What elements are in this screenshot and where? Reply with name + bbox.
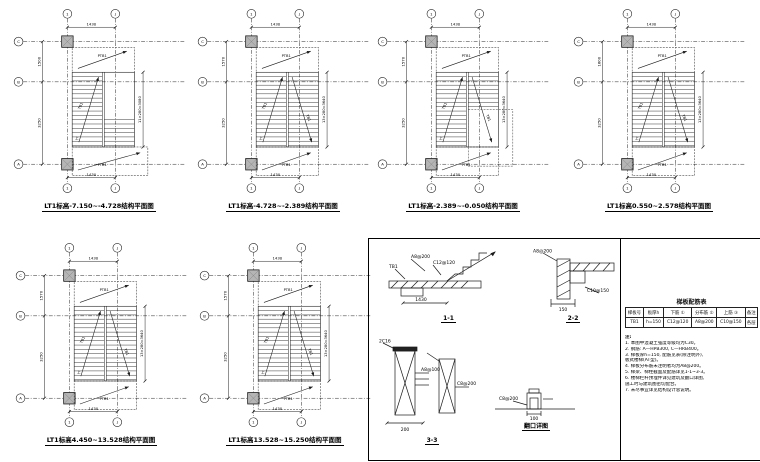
svg-text:A: A xyxy=(577,162,580,167)
svg-text:J: J xyxy=(116,420,118,425)
svg-text:J: J xyxy=(478,11,480,16)
svg-text:11×280=3080: 11×280=3080 xyxy=(138,96,142,124)
schedule-cell: 分布筋 ② xyxy=(692,308,717,318)
svg-text:PTB1: PTB1 xyxy=(284,288,293,292)
svg-text:1570: 1570 xyxy=(39,290,44,300)
stair-plan-5: 11JJCBAPTB1上TB1TB1PTB1143014301570325013… xyxy=(10,236,192,446)
svg-text:PTB1: PTB1 xyxy=(282,163,291,167)
svg-text:C: C xyxy=(381,39,384,44)
svg-text:A8@100: A8@100 xyxy=(421,367,440,373)
svg-text:3250: 3250 xyxy=(223,352,228,362)
svg-text:PTB1: PTB1 xyxy=(658,163,667,167)
svg-text:1: 1 xyxy=(68,245,71,250)
svg-text:C: C xyxy=(577,39,580,44)
plan-caption-5: LT1标高4.450~13.528结构平面图 xyxy=(45,434,158,446)
svg-text:TB1: TB1 xyxy=(79,336,86,345)
svg-text:TB1: TB1 xyxy=(263,336,270,345)
svg-text:B: B xyxy=(381,79,384,84)
schedule-cell: h=150 xyxy=(643,318,663,328)
svg-text:1430: 1430 xyxy=(646,172,656,177)
svg-text:13×280=3640: 13×280=3640 xyxy=(698,96,702,124)
svg-text:B: B xyxy=(203,313,206,318)
svg-text:1: 1 xyxy=(430,186,433,191)
svg-text:PTB1: PTB1 xyxy=(462,54,471,58)
svg-text:C8@200: C8@200 xyxy=(499,396,518,402)
section-2-2: A8@200 C10@150 150 2-2 xyxy=(529,247,617,323)
schedule-title: 梯板配筋表 xyxy=(625,297,758,306)
svg-text:1: 1 xyxy=(430,11,433,16)
stair-plan-3: 11JJCBAPTB1上TB1TB1PTB1143014301570325013… xyxy=(372,2,554,212)
schedule-cell: C10@150 xyxy=(717,318,745,328)
svg-text:1430: 1430 xyxy=(450,172,460,177)
svg-text:1430: 1430 xyxy=(86,172,96,177)
svg-text:上: 上 xyxy=(77,369,81,374)
schedule-cell: C12@120 xyxy=(664,318,692,328)
stair-plan-3-drawing: 11JJCBAPTB1上TB1TB1PTB1143014301570325013… xyxy=(372,2,554,200)
schedule-cell: 各层 xyxy=(745,318,757,328)
svg-text:A: A xyxy=(203,396,206,401)
svg-text:13×280=3640: 13×280=3640 xyxy=(322,96,326,124)
svg-text:3250: 3250 xyxy=(39,352,44,362)
section-1-1-caption: 1-1 xyxy=(441,315,456,323)
svg-text:1: 1 xyxy=(626,11,629,16)
svg-text:150: 150 xyxy=(559,307,568,313)
svg-text:1430: 1430 xyxy=(646,21,656,26)
detail-box-divider xyxy=(620,239,621,460)
svg-text:A8@200: A8@200 xyxy=(411,254,430,260)
svg-text:PTB1: PTB1 xyxy=(658,54,667,58)
curb-detail-caption: 翻口详图 xyxy=(522,421,550,431)
svg-text:200: 200 xyxy=(401,427,410,433)
svg-text:1430: 1430 xyxy=(450,21,460,26)
svg-text:J: J xyxy=(114,186,116,191)
schedule-cell: TB1 xyxy=(626,318,644,328)
svg-text:C12@120: C12@120 xyxy=(433,260,455,266)
schedule-cell: 梯板号 xyxy=(626,308,644,318)
svg-text:1600: 1600 xyxy=(597,56,602,66)
svg-text:上: 上 xyxy=(439,135,443,140)
plan-caption-6: LT1标高13.528~15.250结构平面图 xyxy=(226,434,343,446)
svg-text:13×280=3640: 13×280=3640 xyxy=(502,96,506,124)
svg-text:J: J xyxy=(674,11,676,16)
svg-text:1430: 1430 xyxy=(86,21,96,26)
svg-text:B: B xyxy=(201,79,204,84)
svg-text:3250: 3250 xyxy=(401,118,406,128)
svg-text:1430: 1430 xyxy=(272,406,282,411)
svg-text:上: 上 xyxy=(261,369,265,374)
svg-text:TB1: TB1 xyxy=(77,102,84,111)
svg-text:TB1: TB1 xyxy=(261,102,268,111)
svg-text:1: 1 xyxy=(626,186,629,191)
svg-text:PTB1: PTB1 xyxy=(98,54,107,58)
svg-text:J: J xyxy=(674,186,676,191)
stair-plan-4-drawing: 11JJCBAPTB1上TB1TB1PTB1143014301600325013… xyxy=(568,2,750,200)
svg-text:13×280=3640: 13×280=3640 xyxy=(140,330,144,358)
svg-text:2C16: 2C16 xyxy=(379,339,391,345)
svg-text:1: 1 xyxy=(250,186,253,191)
svg-text:1570: 1570 xyxy=(221,56,226,66)
schedule-cell: 板厚h xyxy=(643,308,663,318)
svg-text:1570: 1570 xyxy=(223,290,228,300)
svg-text:C: C xyxy=(19,273,22,278)
svg-text:A: A xyxy=(201,162,204,167)
svg-text:PTB1: PTB1 xyxy=(100,397,109,401)
svg-text:B: B xyxy=(17,79,20,84)
svg-text:TB1: TB1 xyxy=(388,264,398,270)
svg-text:PTB1: PTB1 xyxy=(284,397,293,401)
stair-plan-6: 11JJCBAPTB1上TB1TB1PTB1143014301570325013… xyxy=(194,236,376,446)
svg-text:1: 1 xyxy=(66,186,69,191)
section-2-2-drawing: A8@200 C10@150 150 xyxy=(529,247,617,315)
stair-plan-2: 11JJCBAPTB1上TB1TB1PTB1143014301570325013… xyxy=(192,2,374,212)
svg-text:1430: 1430 xyxy=(270,21,280,26)
schedule-cell: 备注 xyxy=(745,308,757,318)
schedule-cell: 下筋 ① xyxy=(664,308,692,318)
svg-text:A8@200: A8@200 xyxy=(533,249,552,255)
section-1-1: A8@200 C12@120 TB1 1430 1-1 xyxy=(381,247,516,323)
svg-text:上: 上 xyxy=(259,135,263,140)
svg-text:J: J xyxy=(478,186,480,191)
svg-text:J: J xyxy=(300,245,302,250)
svg-text:A: A xyxy=(17,162,20,167)
svg-text:A: A xyxy=(19,396,22,401)
svg-text:C: C xyxy=(203,273,206,278)
stair-plan-5-drawing: 11JJCBAPTB1上TB1TB1PTB1143014301570325013… xyxy=(10,236,192,434)
notes-block: 注: 1. 本图中混凝土强度等级均为C30。2. 钢筋: A—HPB300, C… xyxy=(625,335,757,393)
svg-text:1: 1 xyxy=(250,11,253,16)
section-3-3: 2C16 A8@100 C8@200 200 3-3 xyxy=(377,337,487,445)
schedule-table: 梯板号板厚h下筋 ①分布筋 ②上筋 ③备注TB1h=150C12@120A8@2… xyxy=(625,307,758,328)
curb-detail: C8@200 100 翻口详图 xyxy=(491,381,581,431)
plan-caption-3: LT1标高-2.389~-0.050结构平面图 xyxy=(406,200,519,212)
note-line: 7. 未尽事宜详见结构设计总说明。 xyxy=(625,388,757,394)
section-2-2-caption: 2-2 xyxy=(566,315,581,323)
svg-text:J: J xyxy=(114,11,116,16)
plan-caption-1: LT1标高-7.150~-4.728结构平面图 xyxy=(42,200,155,212)
svg-text:1570: 1570 xyxy=(401,56,406,66)
stair-plan-6-drawing: 11JJCBAPTB1上TB1TB1PTB1143014301570325013… xyxy=(194,236,376,434)
plan-caption-2: LT1标高-4.728~-2.389结构平面图 xyxy=(226,200,339,212)
svg-text:C10@150: C10@150 xyxy=(587,288,609,294)
detail-box: A8@200 C12@120 TB1 1430 1-1 xyxy=(368,238,760,461)
section-3-3-caption: 3-3 xyxy=(425,437,440,445)
svg-text:J: J xyxy=(300,420,302,425)
svg-text:1: 1 xyxy=(66,11,69,16)
svg-text:PTB1: PTB1 xyxy=(100,288,109,292)
plan-caption-4: LT1标高0.550~2.578结构平面图 xyxy=(605,200,713,212)
schedule-cell: 上筋 ③ xyxy=(717,308,745,318)
section-3-3-drawing: 2C16 A8@100 C8@200 200 xyxy=(377,337,487,437)
svg-text:B: B xyxy=(19,313,22,318)
svg-text:1: 1 xyxy=(68,420,71,425)
svg-text:C: C xyxy=(17,39,20,44)
section-1-1-drawing: A8@200 C12@120 TB1 1430 xyxy=(381,247,516,315)
svg-text:J: J xyxy=(298,186,300,191)
drawing-sheet: 11JJCBAPTB1上TB1PTB1143014301500325011×28… xyxy=(0,0,760,462)
svg-text:A: A xyxy=(381,162,384,167)
svg-text:13×280=3640: 13×280=3640 xyxy=(324,330,328,358)
svg-text:TB1: TB1 xyxy=(637,102,644,111)
svg-text:1430: 1430 xyxy=(270,172,280,177)
schedule-cell: A8@200 xyxy=(692,318,717,328)
svg-text:J: J xyxy=(298,11,300,16)
svg-text:1500: 1500 xyxy=(37,56,42,66)
svg-text:1430: 1430 xyxy=(415,297,427,303)
svg-text:PTB1: PTB1 xyxy=(462,163,471,167)
curb-detail-drawing: C8@200 100 xyxy=(491,381,581,421)
stair-plan-2-drawing: 11JJCBAPTB1上TB1TB1PTB1143014301570325013… xyxy=(192,2,374,200)
stair-plan-4: 11JJCBAPTB1上TB1TB1PTB1143014301600325013… xyxy=(568,2,750,212)
svg-text:PTB1: PTB1 xyxy=(98,163,107,167)
svg-text:1: 1 xyxy=(252,245,255,250)
svg-text:上: 上 xyxy=(635,135,639,140)
svg-text:PTB1: PTB1 xyxy=(282,54,291,58)
svg-text:C8@200: C8@200 xyxy=(457,381,476,387)
svg-text:上: 上 xyxy=(75,135,79,140)
svg-text:TB1: TB1 xyxy=(441,102,448,111)
svg-text:B: B xyxy=(577,79,580,84)
svg-text:1430: 1430 xyxy=(272,255,282,260)
rebar-schedule: 梯板配筋表 梯板号板厚h下筋 ①分布筋 ②上筋 ③备注TB1h=150C12@1… xyxy=(625,297,758,328)
svg-text:J: J xyxy=(116,245,118,250)
svg-text:1: 1 xyxy=(252,420,255,425)
svg-text:3250: 3250 xyxy=(221,118,226,128)
svg-text:1430: 1430 xyxy=(88,406,98,411)
svg-text:C: C xyxy=(201,39,204,44)
stair-plan-1-drawing: 11JJCBAPTB1上TB1PTB1143014301500325011×28… xyxy=(8,2,190,200)
stair-plan-1: 11JJCBAPTB1上TB1PTB1143014301500325011×28… xyxy=(8,2,190,212)
svg-text:1430: 1430 xyxy=(88,255,98,260)
svg-text:3250: 3250 xyxy=(597,118,602,128)
svg-text:3250: 3250 xyxy=(37,118,42,128)
